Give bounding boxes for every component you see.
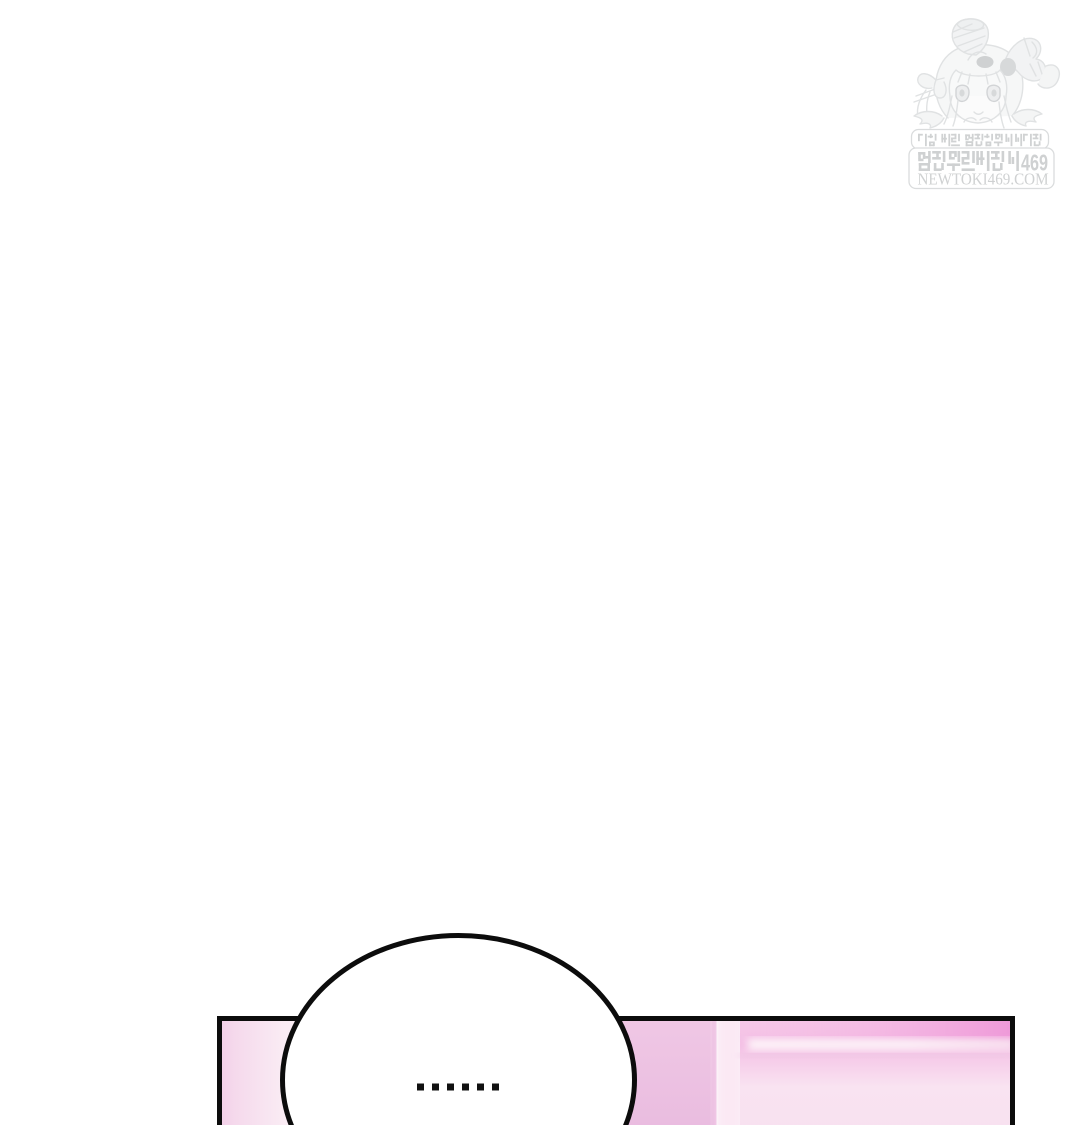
svg-text:NEWTOKI469.COM: NEWTOKI469.COM bbox=[918, 170, 1049, 189]
